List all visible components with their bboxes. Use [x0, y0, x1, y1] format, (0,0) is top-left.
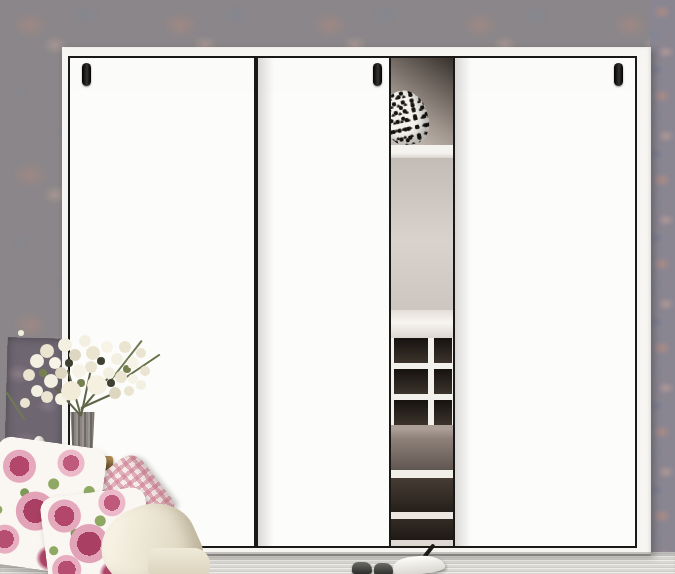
- interior-cubby-shelves: [391, 338, 455, 425]
- cubby-cell: [394, 338, 428, 363]
- flower-blossoms: [18, 330, 24, 336]
- interior-shoe-shelf: [391, 478, 455, 512]
- cubby-cell: [394, 369, 428, 394]
- interior-hanging-space: [391, 158, 455, 310]
- dark-slipper: [352, 562, 372, 574]
- cubby-cell: [434, 400, 452, 425]
- door-handle-center: [373, 63, 382, 86]
- interior-top-shelf-space: [391, 58, 455, 145]
- interior-shelf: [391, 310, 455, 338]
- wallpaper-strip-right: [650, 0, 675, 556]
- interior-shelf: [391, 145, 455, 158]
- door-handle-band: [258, 58, 389, 91]
- door-handle-right: [614, 63, 623, 86]
- interior-shelf: [391, 512, 455, 519]
- flower-bouquet: [18, 330, 150, 426]
- sofa-arm-front: [148, 548, 210, 574]
- knit-hat: [391, 86, 433, 149]
- cubby-cell: [394, 400, 428, 425]
- cubby-cell: [434, 338, 452, 363]
- door-handle-band: [70, 58, 254, 91]
- interior-shoe-shelf: [391, 519, 455, 540]
- dark-slipper: [374, 563, 393, 574]
- room-scene: [0, 0, 675, 574]
- wardrobe-door-right: [453, 56, 637, 548]
- door-handle-left: [82, 63, 91, 86]
- wardrobe-door-center: [256, 56, 391, 548]
- door-handle-band: [455, 58, 635, 91]
- interior-shelf: [391, 470, 455, 478]
- cubby-cell: [434, 369, 452, 394]
- wardrobe-open-section: [391, 56, 455, 548]
- interior-drawer: [391, 425, 455, 470]
- interior-base: [391, 540, 455, 548]
